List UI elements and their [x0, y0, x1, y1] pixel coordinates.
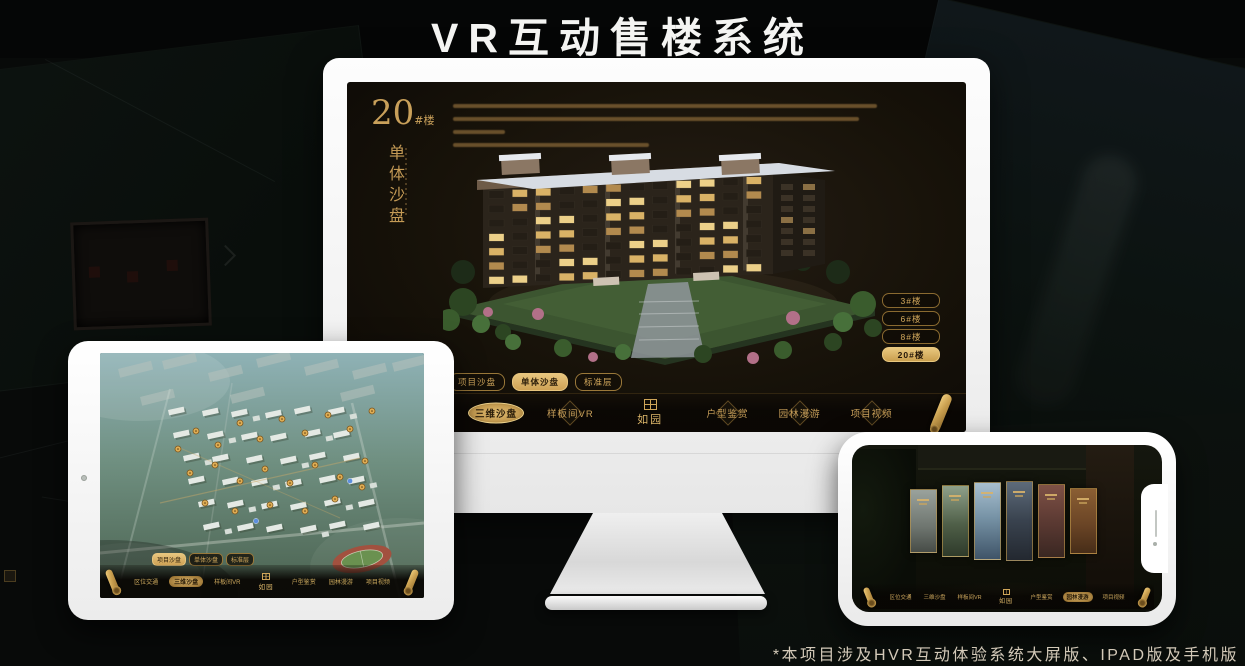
- scroll-icon[interactable]: [404, 569, 420, 595]
- camera-icon: [81, 475, 87, 481]
- nav-item[interactable]: 户型鉴赏: [703, 400, 753, 426]
- nav-item[interactable]: 项目视频: [364, 576, 392, 587]
- camera-icon: [1153, 542, 1157, 546]
- monitor-stand-base: [545, 596, 767, 610]
- subtab-button[interactable]: 标准层: [575, 373, 622, 391]
- navbar-right-items: 户型鉴赏园林漫游项目视频: [1029, 592, 1127, 602]
- scene-card-strip: [905, 469, 1101, 573]
- nav-item[interactable]: 项目视频: [847, 400, 897, 426]
- aerial-masterplan-map[interactable]: [100, 353, 424, 598]
- ruyuan-logo: 如园: [259, 573, 274, 591]
- nav-item[interactable]: 园林漫游: [327, 576, 355, 587]
- nav-item[interactable]: 区位交通: [887, 592, 913, 602]
- seal-icon: [1003, 589, 1010, 595]
- description-paragraph: [453, 104, 889, 156]
- phone-screen: 区位交通三维沙盘样板间VR 如园 户型鉴赏园林漫游项目视频: [852, 445, 1162, 612]
- subtab-button[interactable]: 单体沙盘: [512, 373, 568, 391]
- tablet-screen: 项目沙盘单体沙盘标准层 区位交通三维沙盘样板间VR 如园 户型鉴赏园林漫游项目视…: [100, 353, 424, 598]
- navbar-left-items: 区位交通三维沙盘样板间VR: [132, 576, 242, 587]
- scene-card[interactable]: [1070, 488, 1097, 554]
- nav-item[interactable]: 园林漫游: [775, 400, 825, 426]
- logo-text: 如园: [259, 581, 274, 591]
- nav-item[interactable]: 样板间VR: [212, 576, 242, 587]
- nav-item[interactable]: 三维沙盘: [471, 400, 521, 426]
- poster: VR互动售楼系统 *本项目涉及HVR互动体验系统大屏版、IPAD版及手机版 20…: [0, 0, 1245, 666]
- background-logo-glyph: [4, 570, 16, 582]
- building-3d-model[interactable]: [443, 152, 883, 367]
- scroll-icon[interactable]: [929, 393, 953, 432]
- navbar-left-items: 区位交通三维沙盘样板间VR: [887, 592, 983, 602]
- subtab-button[interactable]: 项目沙盘: [449, 373, 505, 391]
- nav-item[interactable]: 园林漫游: [1063, 592, 1093, 602]
- phone-navbar: 区位交通三维沙盘样板间VR 如园 户型鉴赏园林漫游项目视频: [860, 584, 1154, 609]
- ruyuan-logo: 如园: [637, 399, 663, 427]
- nav-item[interactable]: 样板间VR: [955, 592, 983, 602]
- nav-item[interactable]: 项目视频: [1101, 592, 1127, 602]
- building-select-button[interactable]: 6#楼: [882, 311, 940, 326]
- phone-device: 区位交通三维沙盘样板间VR 如园 户型鉴赏园林漫游项目视频: [838, 432, 1176, 626]
- scene-card[interactable]: [942, 485, 969, 557]
- scroll-icon[interactable]: [863, 587, 876, 607]
- logo-text: 如园: [999, 596, 1013, 605]
- building-select-button[interactable]: 20#楼: [882, 347, 940, 362]
- scene-card[interactable]: [1038, 484, 1065, 558]
- scroll-icon[interactable]: [105, 569, 121, 595]
- footnote: *本项目涉及HVR互动体验系统大屏版、IPAD版及手机版: [773, 641, 1239, 665]
- navbar-right-items: 户型鉴赏园林漫游项目视频: [290, 576, 392, 587]
- scene-card[interactable]: [974, 482, 1001, 560]
- tablet-device: 项目沙盘单体沙盘标准层 区位交通三维沙盘样板间VR 如园 户型鉴赏园林漫游项目视…: [68, 341, 454, 620]
- logo-text: 如园: [637, 411, 663, 427]
- seal-icon: [644, 399, 657, 410]
- nav-item[interactable]: 户型鉴赏: [290, 576, 318, 587]
- nav-item[interactable]: 样板间VR: [543, 400, 598, 426]
- navbar-right-items: 户型鉴赏园林漫游项目视频: [703, 400, 897, 426]
- interior-ceiling-beam: [918, 445, 1102, 470]
- nav-item[interactable]: 三维沙盘: [921, 592, 947, 602]
- background-plaque: [70, 218, 212, 331]
- subtitle-english-decor: [405, 148, 407, 218]
- scroll-icon[interactable]: [1139, 587, 1152, 607]
- seal-icon: [262, 573, 270, 580]
- nav-item[interactable]: 区位交通: [132, 576, 160, 587]
- desktop-subtabs: 项目沙盘单体沙盘标准层: [449, 373, 622, 391]
- scene-card[interactable]: [910, 489, 937, 553]
- phone-notch: [1141, 484, 1168, 573]
- nav-item[interactable]: 三维沙盘: [169, 576, 203, 587]
- tablet-navbar: 区位交通三维沙盘样板间VR 如园 户型鉴赏园林漫游项目视频: [100, 565, 424, 598]
- building-buttons: 3#楼6#楼8#楼20#楼: [882, 293, 940, 365]
- ruyuan-logo: 如园: [999, 589, 1013, 605]
- building-select-button[interactable]: 3#楼: [882, 293, 940, 308]
- building-select-button[interactable]: 8#楼: [882, 329, 940, 344]
- building-heading: 20#楼: [371, 96, 434, 130]
- page-title: VR互动售楼系统: [0, 4, 1245, 64]
- scene-card[interactable]: [1006, 481, 1033, 561]
- speaker-icon: [1155, 510, 1158, 537]
- building-number: 20: [371, 93, 414, 133]
- nav-item[interactable]: 户型鉴赏: [1029, 592, 1055, 602]
- page-subtitle-vertical: 单体沙盘: [383, 144, 407, 244]
